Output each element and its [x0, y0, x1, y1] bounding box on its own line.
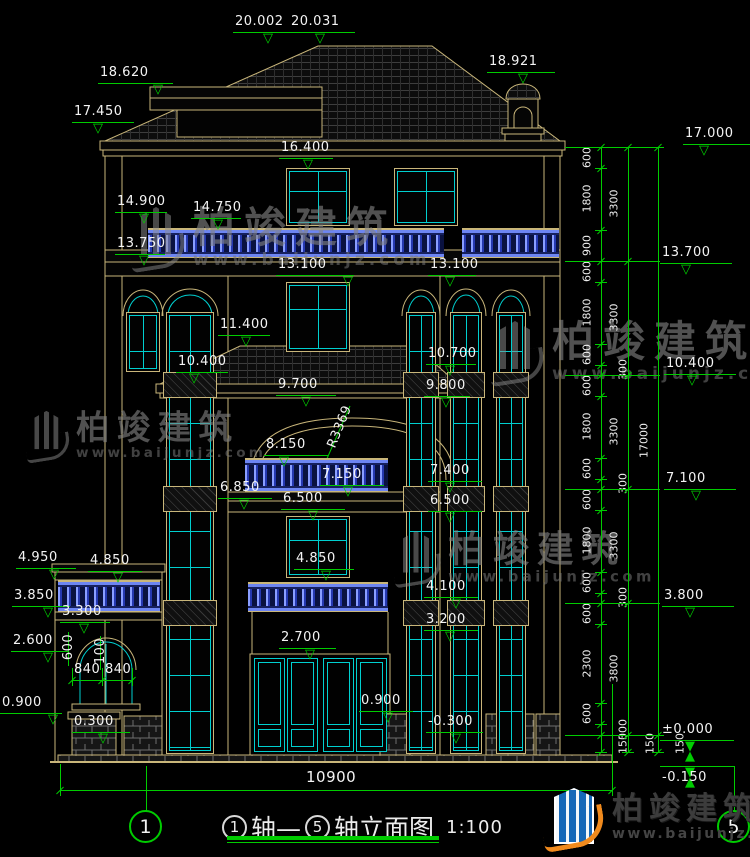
- elevation-marker-line: [176, 372, 228, 373]
- level-line: [565, 147, 660, 148]
- elevation-marker-triangle: ▽: [239, 499, 249, 510]
- elevation-marker-triangle: ▽: [98, 733, 108, 744]
- elevation-marker-line: [660, 263, 732, 264]
- dim-label: 20.002: [235, 15, 284, 29]
- dim-label: 6.500: [283, 492, 323, 506]
- elevation-marker-triangle: ▽: [48, 714, 58, 725]
- brand-logo-icon: [546, 788, 602, 846]
- dim-label: 18.921: [489, 55, 538, 69]
- spandrel-panel: [493, 372, 529, 398]
- dim-label: 16.400: [281, 141, 330, 155]
- elevation-marker-triangle: ▽: [451, 733, 461, 744]
- dim-extension: [612, 684, 613, 796]
- elevation-marker-triangle: ▽: [685, 607, 695, 618]
- elevation-marker-triangle: ▽: [451, 598, 461, 609]
- dim-chain-label: 1800: [582, 407, 593, 447]
- dim-label: 9.800: [426, 379, 466, 393]
- dim-label: 17.000: [685, 127, 734, 141]
- dim-label: 7.100: [666, 472, 706, 486]
- dim-label: 10.400: [178, 355, 227, 369]
- window-glass: [129, 315, 157, 369]
- level-line: [565, 603, 660, 604]
- dim-label: 14.900: [117, 195, 166, 209]
- elevation-marker-triangle: ▽: [139, 255, 149, 266]
- dim-label: 10.700: [428, 347, 477, 361]
- brand-name: 柏竣建筑: [612, 792, 750, 826]
- window-glass: [289, 285, 347, 349]
- dim-label: 17.450: [74, 105, 123, 119]
- dim-chain-label: 300: [618, 578, 629, 618]
- balustrade: [148, 228, 444, 258]
- dim-chain-label: 600: [582, 479, 593, 519]
- elevation-marker-triangle: ▽: [301, 396, 311, 407]
- window-glass: [289, 171, 347, 223]
- elevation-marker-triangle: ▽: [153, 84, 163, 95]
- elevation-marker-triangle: ▽: [681, 264, 691, 275]
- elevation-marker-triangle: ▽: [518, 73, 528, 84]
- window-glass: [289, 519, 347, 575]
- dim-label: 4.100: [426, 580, 466, 594]
- elevation-marker-triangle: ▽: [699, 145, 709, 156]
- elevation-marker-triangle: ▽: [43, 652, 53, 663]
- elevation-marker-triangle: ▽: [445, 276, 455, 287]
- dim-chain-label: 3300: [609, 184, 620, 224]
- dim-label: 13.750: [117, 237, 166, 251]
- dim-label: ±0.000: [662, 723, 713, 737]
- dim-chain-label: 600: [582, 693, 593, 733]
- dim-label: 10.400: [666, 357, 715, 371]
- dim-chain-line: [628, 147, 629, 752]
- balustrade: [248, 582, 388, 612]
- elevation-marker-triangle: ▽: [445, 365, 455, 376]
- elevation-marker-triangle: ▽: [305, 649, 315, 660]
- elevation-marker-triangle: ▽: [687, 375, 697, 386]
- dim-label: 2.600: [13, 634, 53, 648]
- dim-label: 7.400: [430, 464, 470, 478]
- elevation-marker-triangle: ▽: [279, 456, 289, 467]
- dim-label: 7.150: [322, 468, 362, 482]
- elevation-marker-line: [16, 568, 76, 569]
- dim-chain-label: 600: [582, 137, 593, 177]
- elevation-marker-triangle: ▽: [321, 570, 331, 581]
- dim-label: 13.100: [278, 258, 327, 272]
- dim-label: 3.200: [426, 613, 466, 627]
- dim-label: 6.500: [430, 494, 470, 508]
- dim-chain-label: 3300: [609, 298, 620, 338]
- elevation-marker-triangle: ▽: [383, 712, 393, 723]
- title-underline: [227, 836, 439, 840]
- elevation-marker-triangle: ▽: [213, 219, 223, 230]
- dim-label: 9.700: [278, 378, 318, 392]
- dim-chain-line: [601, 147, 602, 752]
- dim-label: 8.150: [266, 438, 306, 452]
- dim-label: 3.850: [14, 589, 54, 603]
- elevation-marker-line: [264, 455, 328, 456]
- dim-label-rotated: 600: [62, 634, 76, 660]
- entry-door-leaf: [323, 658, 354, 752]
- elevation-marker-line: [72, 122, 134, 123]
- elevation-marker-line: [662, 606, 734, 607]
- spandrel-panel: [493, 600, 529, 626]
- title-underline-thin: [227, 842, 439, 843]
- dim-label: 3.300: [62, 605, 102, 619]
- elevation-marker-triangle: ▽: [343, 486, 353, 497]
- window: [286, 282, 350, 352]
- dim-label: -0.300: [428, 715, 473, 729]
- dim-chain-label: 150: [645, 723, 656, 763]
- spandrel-panel: [493, 486, 529, 512]
- elevation-marker-triangle: ▽: [445, 512, 455, 523]
- brand-url: www.baijunjz.com: [612, 826, 750, 842]
- cad-elevation-sheet: 20.002▽20.031▽18.620▽17.450▽18.921▽16.40…: [0, 0, 750, 857]
- elevation-marker-line: [428, 511, 482, 512]
- dim-chain-label: 600: [582, 251, 593, 291]
- dim-label: 0.900: [361, 694, 401, 708]
- dim-chain-label: 300: [618, 350, 629, 390]
- dim-label: 840: [105, 663, 131, 677]
- dim-label: 0.900: [2, 696, 42, 710]
- dim-chain-label: 300: [618, 464, 629, 504]
- dim-chain-label: 600: [582, 593, 593, 633]
- elevation-marker-triangle: ▽: [139, 213, 149, 224]
- dim-chain-label: 1800: [582, 179, 593, 219]
- dim-label: 0.300: [74, 715, 114, 729]
- dim-chain-label: 3300: [609, 526, 620, 566]
- window: [394, 168, 458, 226]
- overall-dim-label: 10900: [306, 770, 356, 784]
- elevation-marker-line: [11, 651, 68, 652]
- elevation-marker-line: [660, 740, 734, 741]
- elevation-marker-triangle: ▽: [189, 373, 199, 384]
- dim-chain-label: 1800: [582, 521, 593, 561]
- dim-label: 6.850: [220, 481, 260, 495]
- dim-label: 18.620: [100, 66, 149, 80]
- dim-label: 3.800: [664, 589, 704, 603]
- elevation-marker-line: [683, 144, 750, 145]
- dim-label: 14.750: [193, 201, 242, 215]
- dim-label: 4.850: [90, 554, 130, 568]
- elevation-marker-triangle: ▽: [93, 123, 103, 134]
- elevation-marker-triangle: ▽: [43, 607, 53, 618]
- window: [286, 168, 350, 226]
- balustrade: [245, 458, 388, 492]
- elevation-marker-triangle: ▽: [113, 572, 123, 583]
- dim-label: 2.700: [281, 631, 321, 645]
- dim-chain-label: 1800: [582, 293, 593, 333]
- elevation-marker-triangle: ▽: [445, 631, 455, 642]
- overall-dim-line: [60, 790, 612, 791]
- dim-label: 4.950: [18, 551, 58, 565]
- elevation-marker-triangle: ▽: [49, 569, 59, 580]
- dim-label: 11.400: [220, 318, 269, 332]
- elevation-marker-triangle: ▽: [691, 490, 701, 501]
- dim-chain-label: 3800: [609, 649, 620, 689]
- spandrel-panel: [163, 600, 217, 626]
- dim-label-rotated: 100: [94, 638, 108, 664]
- dim-chain-label: 17000: [639, 421, 650, 461]
- level-line: [565, 375, 660, 376]
- elevation-marker-triangle: ▽: [441, 397, 451, 408]
- dim-chain-label: 150: [618, 723, 629, 763]
- dim-label: 13.100: [430, 258, 479, 272]
- dim-label: 13.700: [662, 246, 711, 260]
- level-line: [565, 261, 660, 262]
- window-glass: [397, 171, 455, 223]
- dim-label: 4.850: [296, 552, 336, 566]
- dim-chain-label: 2300: [582, 643, 593, 683]
- entry-door-leaf: [254, 658, 285, 752]
- elevation-marker-triangle: ▽: [343, 276, 353, 287]
- dim-label: 840: [74, 663, 100, 677]
- spandrel-panel: [163, 486, 217, 512]
- dim-chain-line: [658, 147, 659, 752]
- balustrade: [462, 228, 559, 258]
- axis-bubble-1: 1: [129, 810, 162, 843]
- dim-label: 20.031: [291, 15, 340, 29]
- dim-chain-label: 3300: [609, 412, 620, 452]
- elevation-marker-triangle: ▽: [445, 482, 455, 493]
- tall-window-strip: [126, 312, 160, 372]
- elevation-marker-triangle: ▽: [315, 33, 325, 44]
- elevation-marker-triangle: ▽: [263, 33, 273, 44]
- elevation-marker-triangle: ▽: [303, 159, 313, 170]
- elevation-marker-line: [664, 374, 736, 375]
- elevation-marker-triangle: ▽: [241, 336, 251, 347]
- elevation-marker-triangle: ▽: [308, 510, 318, 521]
- level-line: [565, 735, 660, 736]
- dim-chain-label: 600: [582, 365, 593, 405]
- elevation-marker-line: [428, 481, 482, 482]
- title-scale: 1:100: [446, 817, 503, 838]
- elevation-marker-line: [660, 766, 734, 767]
- elevation-marker-triangle: ▽: [79, 623, 89, 634]
- dim-extension: [60, 764, 61, 796]
- elevation-marker-triangle: ▲: [685, 751, 695, 762]
- level-line: [565, 489, 660, 490]
- entry-door-leaf: [287, 658, 318, 752]
- dim-label: -0.150: [662, 771, 707, 785]
- brand-logo: 柏竣建筑 www.baijunjz.com: [546, 788, 750, 846]
